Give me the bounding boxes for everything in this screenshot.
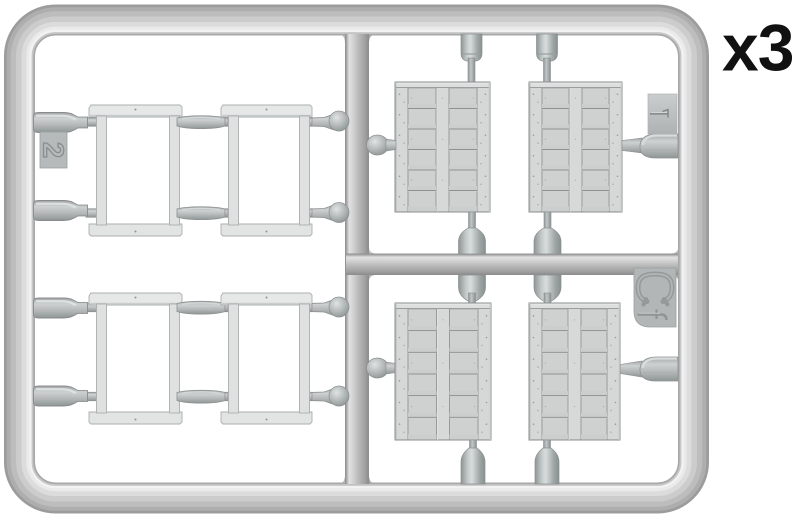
svg-text:2: 2: [37, 142, 69, 158]
svg-text:x3: x3: [722, 11, 793, 85]
